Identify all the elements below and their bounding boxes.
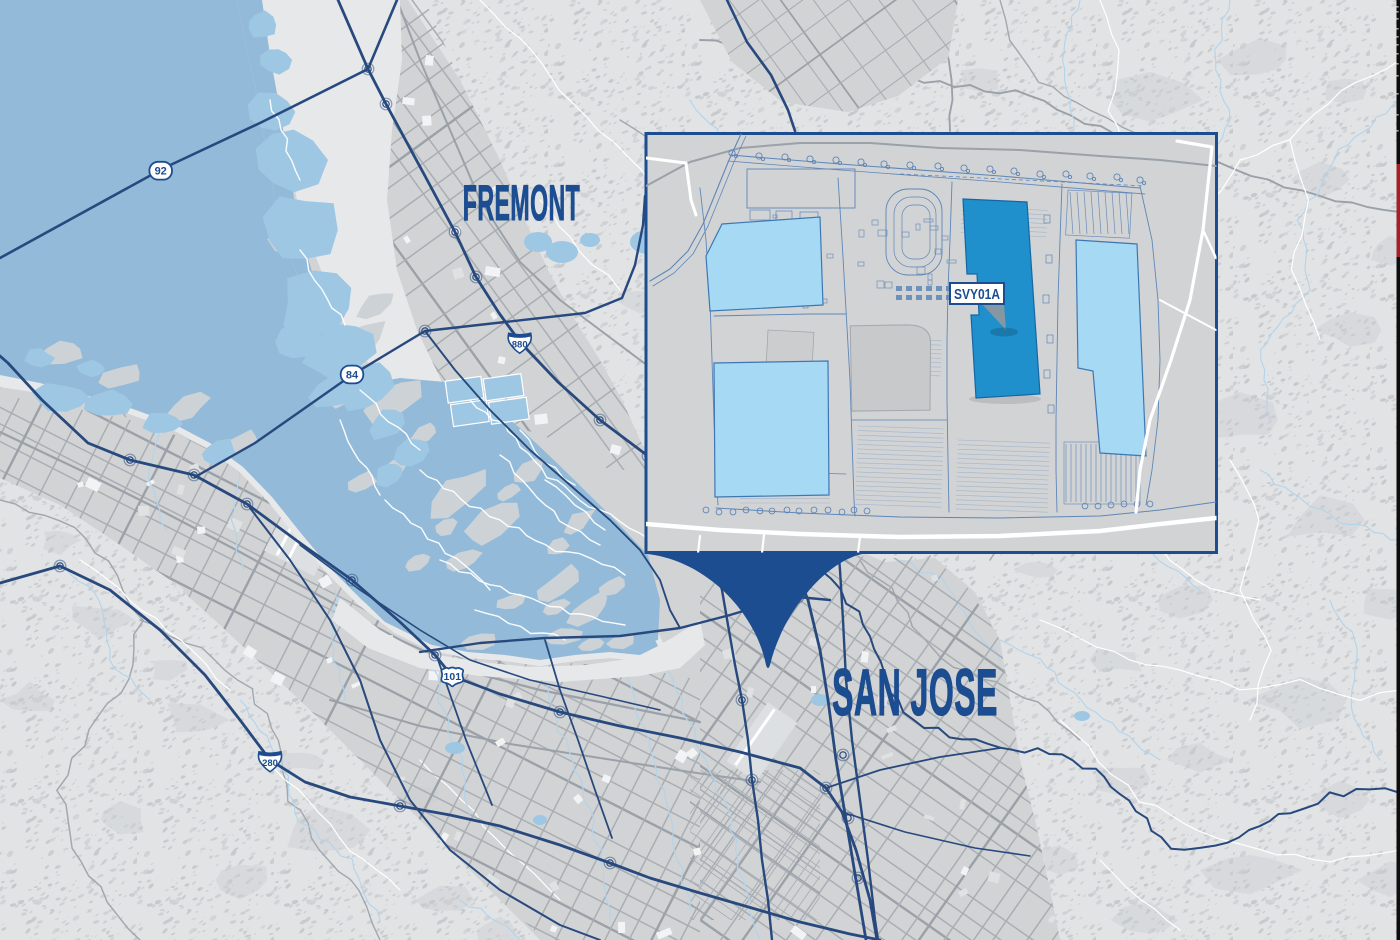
svg-text:101: 101	[444, 671, 462, 683]
svg-text:SVY01A: SVY01A	[954, 286, 1000, 303]
svg-text:880: 880	[512, 340, 528, 351]
svg-text:92: 92	[155, 166, 167, 178]
svg-text:280: 280	[262, 758, 278, 769]
svg-text:84: 84	[346, 370, 359, 382]
svg-text:FREMONT: FREMONT	[463, 176, 580, 231]
svg-text:SAN JOSE: SAN JOSE	[832, 655, 998, 729]
